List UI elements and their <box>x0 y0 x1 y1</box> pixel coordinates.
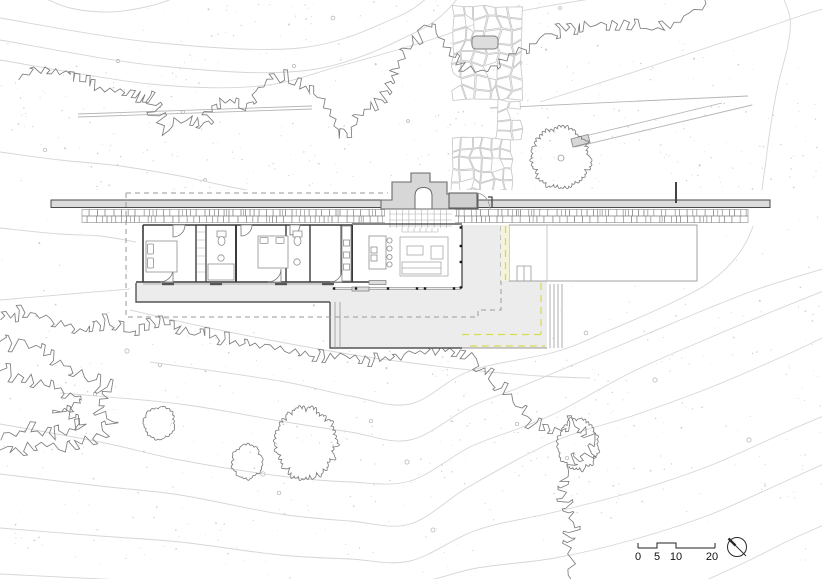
svg-text:10: 10 <box>670 551 682 563</box>
svg-text:5: 5 <box>654 551 660 563</box>
svg-text:20: 20 <box>706 551 718 563</box>
svg-text:0: 0 <box>635 551 641 563</box>
